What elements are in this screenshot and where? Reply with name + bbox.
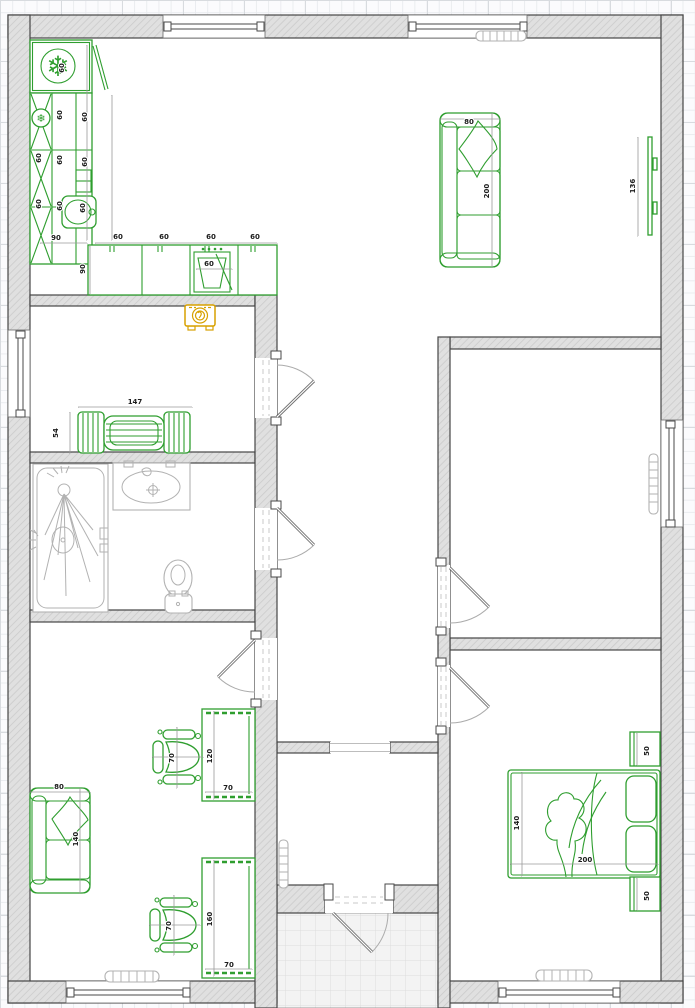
dimension-label: 200 (578, 856, 593, 864)
dimension-label: 70 (223, 784, 233, 792)
dimension-label: 60 (56, 110, 64, 120)
dimension-label: 60 (81, 112, 89, 122)
dimension-label: 140 (513, 816, 521, 831)
dimension-label: 60 (79, 203, 87, 213)
dimension-label: 70 (165, 921, 173, 931)
dimension-label: 200 (483, 184, 491, 199)
washing-machine-icon[interactable] (185, 305, 215, 330)
dimension-label: 60 (35, 199, 43, 209)
dimension-label: 147 (128, 398, 143, 406)
dimension-label: 136 (629, 179, 637, 194)
bench-seat-icon[interactable] (78, 412, 190, 453)
wall-entry-top-right[interactable] (390, 742, 438, 753)
wall-entry-bottom-right[interactable] (393, 885, 438, 913)
wall-exterior-left[interactable] (8, 15, 30, 1003)
window-right[interactable] (661, 420, 683, 527)
dimension-label: 54 (52, 428, 60, 438)
floor-plan-drawing: ❄ ❄ (0, 0, 695, 1008)
wall-living-middleroom[interactable] (450, 337, 661, 349)
dimension-label: 60 (58, 63, 66, 73)
dimension-label: 60 (159, 233, 169, 241)
dimension-label: 60 (206, 233, 216, 241)
toilet-icon[interactable] (164, 560, 192, 613)
radiator-icon[interactable] (105, 971, 159, 982)
sofa-icon[interactable] (440, 113, 500, 267)
dimension-label: 60 (113, 233, 123, 241)
radiator-icon[interactable] (279, 840, 288, 888)
window-bottom-left[interactable] (66, 981, 190, 1003)
dimension-label: 70 (224, 961, 234, 969)
opening-entry-hall (330, 742, 390, 753)
dimension-label: 70 (168, 753, 176, 763)
window-top-left[interactable] (163, 15, 265, 38)
radiator-icon[interactable] (649, 454, 658, 514)
wall-kitchen-utility[interactable] (30, 295, 255, 306)
dimension-label: 90 (79, 264, 87, 274)
dimension-label: 90 (51, 234, 61, 242)
window-left[interactable] (8, 330, 30, 417)
entry-porch-tiles (277, 913, 438, 1008)
dimension-label: 160 (206, 912, 214, 927)
wall-entry-bottom-left[interactable] (277, 885, 325, 913)
wall-utility-bathroom[interactable] (30, 452, 255, 463)
dimension-label: 60 (56, 155, 64, 165)
dimension-label: 140 (72, 832, 80, 847)
dimension-label: 80 (54, 783, 64, 791)
dimension-label: 50 (643, 746, 651, 756)
washbasin-icon[interactable] (113, 461, 190, 510)
dimension-label: 60 (56, 201, 64, 211)
dimension-label: 60 (35, 153, 43, 163)
wall-entry-top-left[interactable] (277, 742, 330, 753)
dimension-label: 60 (81, 157, 89, 167)
dimension-label: 60 (250, 233, 260, 241)
window-bottom-right[interactable] (498, 981, 620, 1003)
wall-middleroom-bedroom[interactable] (450, 638, 661, 650)
kitchen-counter-icon[interactable] (88, 245, 277, 295)
dimension-label: 120 (206, 749, 214, 764)
dimension-label: 50 (643, 891, 651, 901)
floor-plan-canvas[interactable]: ❄ ❄ (0, 0, 695, 1008)
shower-icon[interactable] (29, 464, 108, 612)
radiator-icon[interactable] (536, 970, 592, 981)
radiator-icon[interactable] (476, 31, 526, 41)
svg-text:❄: ❄ (36, 112, 45, 125)
dimension-label: 60 (204, 260, 214, 268)
wall-exterior-top[interactable] (8, 15, 683, 38)
dimension-label: 80 (464, 118, 474, 126)
loveseat-icon[interactable] (30, 788, 90, 893)
